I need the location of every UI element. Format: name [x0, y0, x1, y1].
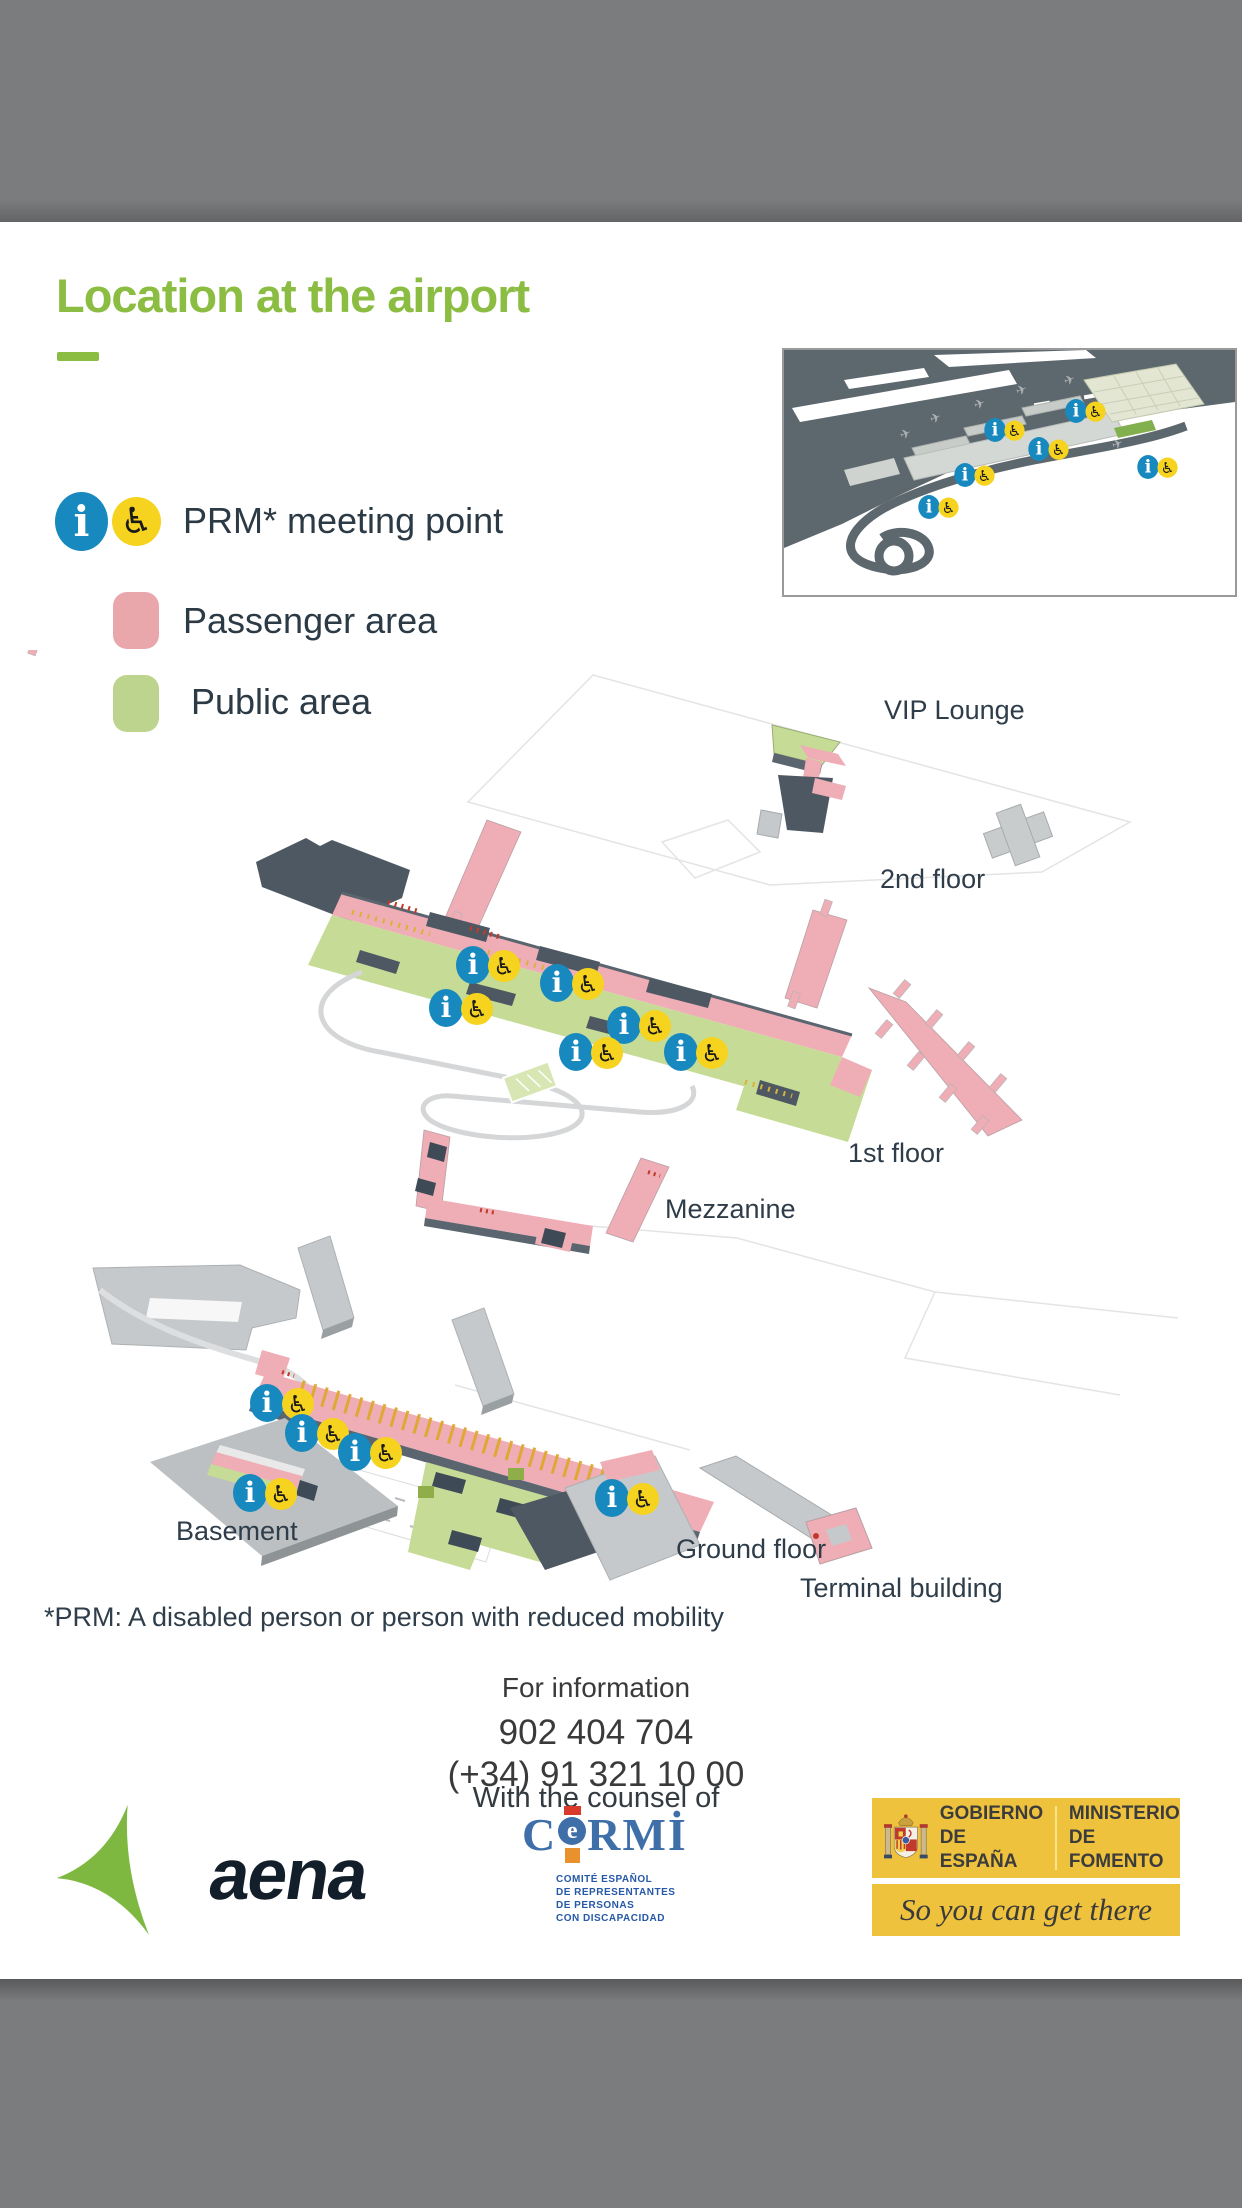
parking-block [503, 1062, 557, 1103]
airport-overview-map: ✈ ✈ ✈ ✈ ✈ ✈ i♿i♿i♿i♿i♿i♿ [782, 348, 1237, 597]
svg-text:i: i [1036, 439, 1043, 460]
government-divider [1055, 1806, 1057, 1870]
legend-prm-label: PRM* meeting point [183, 500, 503, 542]
label-terminal-building: Terminal building [800, 1573, 1003, 1603]
svg-text:i: i [245, 1476, 256, 1509]
aena-logo: aena [52, 1796, 412, 1966]
label-first-floor: 1st floor [848, 1138, 944, 1168]
svg-text:i: i [962, 465, 969, 486]
wheelchair-icon: ♿ [112, 497, 161, 546]
svg-text:♿: ♿ [287, 1391, 309, 1419]
cermi-logo: C e RMİ COMITÉ ESPAÑOL DE REPRESENTANTES… [494, 1806, 714, 1925]
government-tagline: So you can get there [872, 1884, 1180, 1936]
cermi-caption-line: CON DISCAPACIDAD [556, 1912, 714, 1925]
svg-text:i: i [468, 948, 479, 981]
cermi-letters-rmi: RMİ [587, 1812, 688, 1858]
title-dash [57, 352, 99, 361]
page-title: Location at the airport [56, 268, 529, 323]
cermi-caption-line: COMITÉ ESPAÑOL [556, 1873, 714, 1886]
cermi-e-circle: e [558, 1817, 586, 1845]
svg-text:i: i [297, 1416, 308, 1449]
gate-fingers [28, 650, 1007, 1134]
svg-text:i: i [926, 497, 933, 518]
label-second-floor: 2nd floor [880, 864, 985, 894]
contact-phone-1[interactable]: 902 404 704 [371, 1712, 821, 1754]
info-icon: i [55, 492, 108, 551]
svg-text:♿: ♿ [577, 971, 599, 999]
contact-block: For information 902 404 704 (+34) 91 321… [371, 1672, 821, 1796]
svg-text:♿: ♿ [596, 1040, 618, 1068]
svg-text:i: i [552, 966, 563, 999]
label-basement: Basement [176, 1516, 298, 1546]
svg-text:♿: ♿ [493, 953, 515, 981]
svg-text:♿: ♿ [1008, 422, 1022, 440]
legend-passenger-label: Passenger area [183, 600, 437, 642]
first-floor-map: 1st floor [28, 650, 1022, 1168]
aena-wordmark: aena [204, 1834, 373, 1916]
svg-text:♿: ♿ [942, 499, 956, 517]
svg-text:i: i [441, 991, 452, 1024]
svg-text:i: i [262, 1386, 273, 1419]
ground-floor-map: Ground floor Terminal building [93, 1236, 1003, 1603]
svg-text:i: i [607, 1481, 618, 1514]
svg-text:i: i [1073, 401, 1080, 422]
remote-building [978, 798, 1057, 873]
svg-text:♿: ♿ [1161, 459, 1175, 477]
letterbox-bottom [0, 1979, 1242, 2208]
prm-footnote: *PRM: A disabled person or person with r… [44, 1602, 724, 1633]
cermi-caption-line: DE REPRESENTANTES [556, 1886, 714, 1899]
gobierno-line2: DE ESPAÑA [940, 1826, 1043, 1874]
svg-text:♿: ♿ [1089, 403, 1103, 421]
mezzanine-map: Mezzanine [415, 1130, 796, 1254]
svg-text:i: i [676, 1035, 687, 1068]
cermi-caption-line: DE PERSONAS [556, 1899, 714, 1912]
svg-text:i: i [571, 1035, 582, 1068]
svg-text:i: i [619, 1008, 630, 1041]
letterbox-top [0, 0, 1242, 222]
cermi-orange-square [565, 1848, 580, 1863]
second-floor-map: VIP Lounge 2nd floor [757, 695, 1058, 894]
ministerio-line2: DE FOMENTO [1069, 1826, 1180, 1874]
svg-text:♿: ♿ [466, 996, 488, 1024]
svg-text:♿: ♿ [270, 1481, 292, 1509]
cermi-letter-c: C [522, 1812, 557, 1858]
label-ground-floor: Ground floor [676, 1534, 826, 1564]
cermi-red-bar [564, 1806, 581, 1815]
svg-text:♿: ♿ [632, 1486, 654, 1514]
svg-text:♿: ♿ [978, 467, 992, 485]
aena-star-icon [52, 1796, 182, 1946]
cermi-e-mark: e [558, 1806, 586, 1863]
spain-coat-of-arms-icon [884, 1805, 928, 1871]
gobierno-line1: GOBIERNO [940, 1802, 1043, 1826]
cermi-caption: COMITÉ ESPAÑOL DE REPRESENTANTES DE PERS… [556, 1873, 714, 1925]
contact-heading: For information [371, 1672, 821, 1704]
svg-text:i: i [1145, 457, 1152, 478]
label-mezzanine: Mezzanine [665, 1194, 796, 1224]
label-vip-lounge: VIP Lounge [884, 695, 1025, 725]
passenger-area-swatch [113, 592, 159, 649]
infographic-page: Location at the airport i ♿ PRM* meeting… [0, 0, 1242, 2208]
svg-text:♿: ♿ [1052, 441, 1066, 459]
svg-text:i: i [350, 1435, 361, 1468]
floors-exploded-map: VIP Lounge 2nd floor [0, 650, 1242, 1660]
government-banner: GOBIERNO DE ESPAÑA MINISTERIO DE FOMENTO [872, 1798, 1180, 1878]
overview-map-svg: ✈ ✈ ✈ ✈ ✈ ✈ i♿i♿i♿i♿i♿i♿ [784, 350, 1235, 595]
svg-text:♿: ♿ [375, 1440, 397, 1468]
svg-text:♿: ♿ [644, 1013, 666, 1041]
svg-text:♿: ♿ [701, 1040, 723, 1068]
ministerio-line1: MINISTERIO [1069, 1802, 1180, 1826]
government-logo: GOBIERNO DE ESPAÑA MINISTERIO DE FOMENTO… [872, 1798, 1180, 1936]
svg-text:i: i [992, 420, 999, 441]
